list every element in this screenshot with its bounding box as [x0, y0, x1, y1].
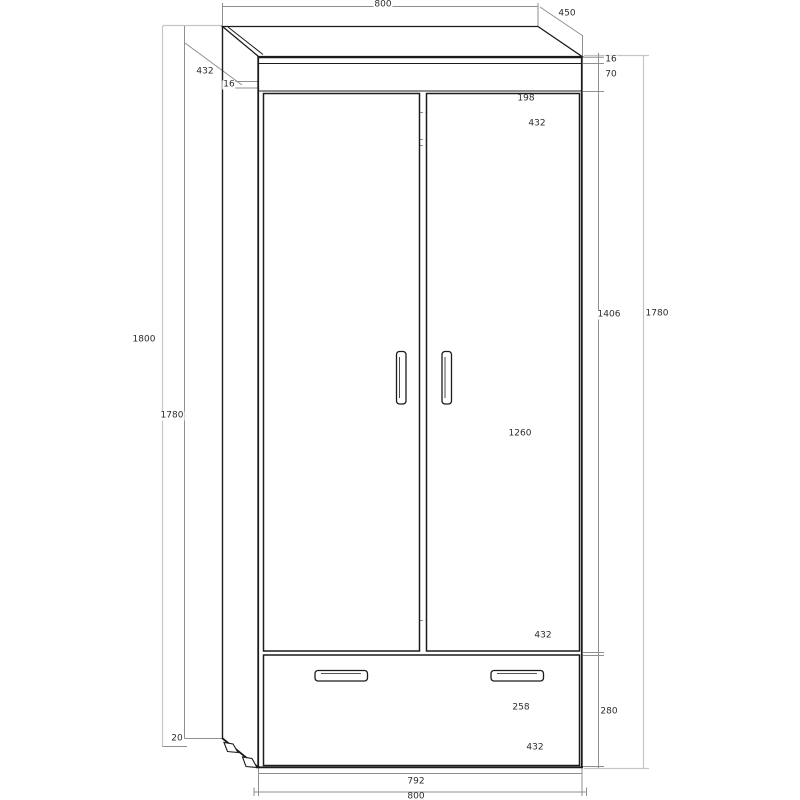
dim-side-depth: 432	[195, 68, 214, 77]
dim-drawer-depth: 432	[525, 744, 544, 753]
dim-top-width: 800	[373, 1, 392, 10]
dim-drawer-front-height: 280	[599, 708, 618, 717]
dim-drawer-inner-height: 258	[511, 704, 530, 713]
dim-rail-depth: 432	[527, 120, 546, 129]
dim-top-depth: 450	[557, 10, 576, 19]
front-left-foot	[224, 743, 238, 753]
left-door-handle	[397, 352, 407, 405]
dim-crown-height: 70	[604, 71, 617, 80]
drawer-right-handle	[491, 671, 544, 682]
drawer-left-handle	[315, 671, 368, 682]
dim-drawer-width: 792	[406, 778, 425, 787]
dim-front-height: 1780	[645, 310, 670, 319]
dim-shelf-depth: 432	[533, 632, 552, 641]
right-door-handle	[442, 352, 452, 405]
dim-total-height: 1800	[132, 336, 157, 345]
dim-interior-height: 1260	[508, 430, 533, 439]
wardrobe-line-art	[0, 0, 800, 800]
dim-foot-height: 20	[170, 735, 183, 744]
dim-bottom-width: 800	[406, 793, 425, 800]
dim-side-thickness: 16	[222, 81, 235, 90]
dim-door-height: 1406	[597, 311, 622, 320]
wardrobe-technical-drawing: 800 450 432 16 16 70 198 432 1406 1780 1…	[0, 0, 800, 800]
dim-side-height: 1780	[160, 412, 185, 421]
dim-rail-offset: 198	[516, 95, 535, 104]
front-left-foot	[243, 757, 258, 768]
dim-top-board-thickness: 16	[604, 56, 617, 65]
